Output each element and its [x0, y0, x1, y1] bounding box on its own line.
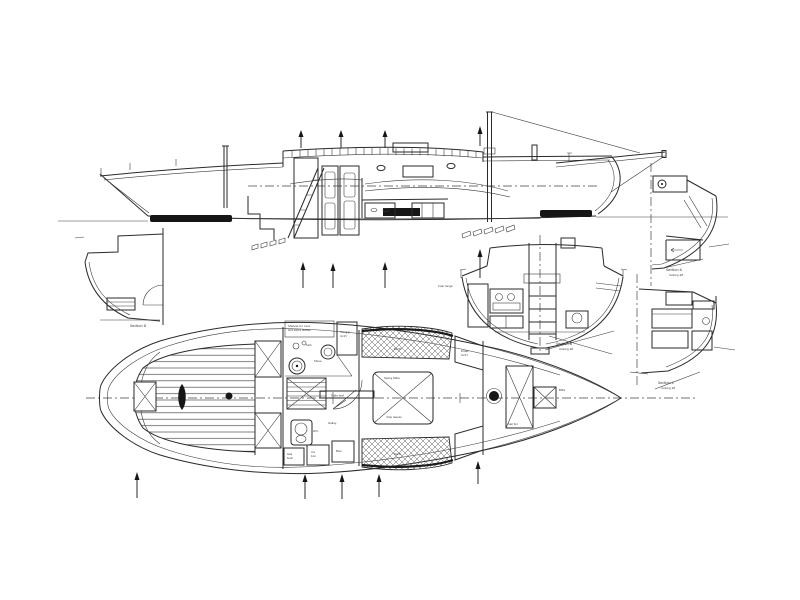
mizzen-post [222, 146, 229, 208]
table-leaf-label: Table leaf [330, 393, 344, 397]
deck-plan-view: Shelves for cans and extra dishes Hang'g… [86, 321, 695, 499]
section-a: Section A looking aft [651, 163, 729, 286]
companionway-ladder [288, 158, 324, 238]
door-swing [143, 285, 163, 305]
ice-label-2: box [311, 454, 316, 458]
gas-label-2: tank [287, 456, 293, 460]
berth-port-label: Berth [394, 347, 402, 351]
section-b: Coal range Section B looking aft [438, 235, 627, 354]
section-c-label: Section C [658, 381, 675, 385]
section-plane-arrows-mid [301, 262, 388, 288]
stove-label: Stove [314, 359, 322, 363]
hanging-locker-label-2: lock'r [340, 334, 348, 338]
bitts-label: Bitts [559, 388, 566, 392]
berth-starboard [362, 437, 452, 470]
galley-label: Galley [328, 421, 337, 425]
hanging-locker [337, 322, 357, 355]
rudder-post [226, 393, 233, 400]
shelves-label-2: and extra dishes [288, 328, 311, 332]
engine-hatch-plate [403, 166, 433, 177]
locker-label-2: lock'r [461, 353, 469, 357]
wc-label: W.C. [313, 429, 319, 433]
vent-box [561, 238, 575, 248]
interior-profile [248, 178, 515, 250]
sink [321, 345, 335, 359]
sail-bin-label: Sail bin [508, 422, 518, 426]
stove-section [490, 289, 523, 313]
berth-port [362, 326, 452, 359]
boat-plans-drawing: Section A looking aft Coal range Secti [0, 0, 800, 600]
companionway-plan [287, 378, 362, 409]
blueprint-page: Section A looking aft Coal range Secti [0, 0, 800, 600]
winch [377, 165, 385, 170]
wc-section [566, 311, 588, 328]
profile-view [58, 112, 728, 250]
section-a-label: Section A [666, 268, 683, 272]
berth-starboard-label: Berth [394, 452, 402, 456]
locker-doors [322, 166, 359, 235]
section-b-sublabel: looking aft [559, 347, 573, 351]
table-label-2: drop leaves [386, 415, 402, 419]
forestay [492, 112, 640, 153]
section-c: Section C looking aft [630, 274, 735, 390]
winch [447, 163, 455, 168]
sink-label: Sink [306, 343, 312, 347]
hull-profile [100, 156, 620, 222]
main-mast-plan [489, 391, 499, 401]
bins-label: Bins [336, 449, 342, 453]
section-a-sublabel: looking aft [669, 273, 683, 277]
head-and-tanks: W.C. Gas tank Ice box Bins [284, 420, 354, 465]
wc [291, 420, 312, 445]
cabin-trunk [283, 143, 483, 177]
section-b-label: Section B [556, 342, 573, 346]
section-d-label: Section D [130, 324, 147, 328]
bowsprit [492, 112, 666, 192]
main-mast [484, 112, 495, 222]
table-label-1: Swing table [384, 376, 400, 380]
section-d: Section D [75, 228, 163, 328]
section-c-sublabel: looking aft [661, 386, 675, 390]
vent-arrows-top [299, 126, 483, 148]
coal-range-label: Coal range [438, 284, 453, 288]
bobstay [611, 157, 663, 192]
